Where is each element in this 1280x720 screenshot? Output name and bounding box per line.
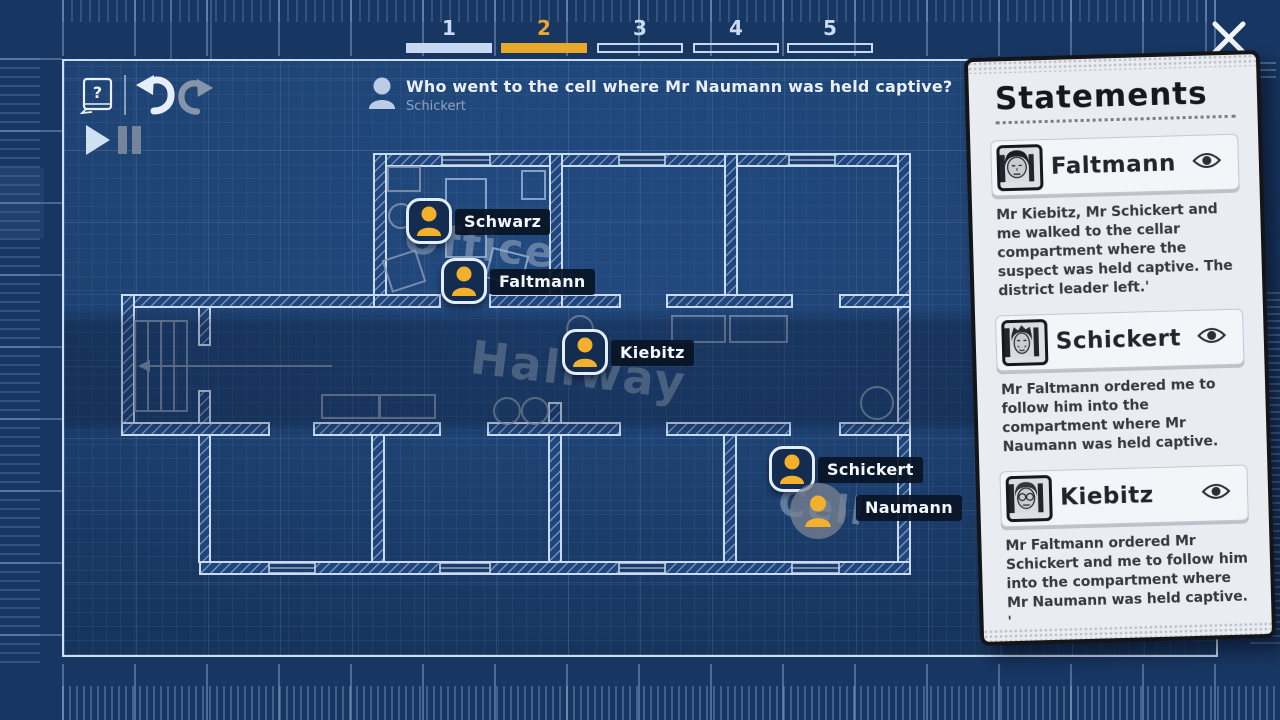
toolbar-divider	[124, 75, 126, 115]
statement-card-kiebitz[interactable]: Kiebitz	[999, 465, 1248, 528]
help-button[interactable]: ?	[80, 77, 116, 119]
question-answer: Schickert	[406, 99, 952, 114]
undo-icon	[134, 73, 176, 117]
play-button[interactable]	[86, 125, 112, 159]
person-icon	[415, 206, 443, 236]
statements-title: Statements	[995, 75, 1238, 118]
character-label: Kiebitz	[611, 340, 694, 366]
character-label: Faltmann	[490, 269, 595, 295]
tab-progress-bar	[406, 43, 492, 53]
tab-progress-bar	[693, 43, 779, 53]
tab-question-5[interactable]: 5	[787, 16, 873, 53]
play-icon	[86, 125, 112, 155]
portrait-kiebitz	[1006, 475, 1053, 522]
character-label: Schwarz	[455, 209, 550, 235]
tab-progress-bar	[787, 43, 873, 53]
eye-toggle-icon[interactable]	[1192, 150, 1223, 175]
statement-name: Kiebitz	[1060, 482, 1154, 511]
tab-question-1[interactable]: 1	[406, 16, 492, 53]
person-icon	[450, 266, 478, 296]
question-header: Who went to the cell where Mr Naumann wa…	[368, 77, 952, 114]
person-icon	[571, 337, 599, 367]
eye-toggle-icon[interactable]	[1196, 325, 1227, 350]
ruler-left	[0, 58, 62, 664]
character-label: Schickert	[818, 457, 923, 483]
tab-number: 3	[597, 16, 683, 40]
character-token-naumann[interactable]: Naumann	[790, 483, 846, 539]
character-label: Naumann	[856, 495, 962, 521]
question-title: Who went to the cell where Mr Naumann wa…	[406, 77, 952, 96]
statement-text: Mr Kiebitz, Mr Schickert and me walked t…	[996, 200, 1241, 302]
pause-button[interactable]	[118, 125, 144, 159]
statement-text: Mr Faltmann ordered Mr Schickert and me …	[1005, 531, 1250, 633]
tab-number: 4	[693, 16, 779, 40]
tab-number: 2	[501, 16, 587, 40]
person-icon	[803, 495, 833, 527]
character-token-schwarz[interactable]: Schwarz	[406, 198, 452, 244]
tab-progress-bar	[597, 43, 683, 53]
tab-number: 1	[406, 16, 492, 40]
portrait-faltmann	[996, 144, 1043, 191]
svg-text:?: ?	[93, 83, 102, 102]
frame-decoration	[0, 168, 44, 238]
paper-texture	[968, 54, 1256, 74]
game-screen: 1 2 3 4 5	[0, 0, 1280, 720]
statements-panel: Statements Faltmann	[964, 50, 1276, 646]
statement-card-schickert[interactable]: Schickert	[995, 309, 1244, 372]
statement-name: Schickert	[1055, 325, 1181, 354]
tab-progress-bar	[501, 43, 587, 53]
eye-toggle-icon[interactable]	[1201, 481, 1232, 506]
speaker-person-icon	[368, 77, 396, 109]
tab-question-4[interactable]: 4	[693, 16, 779, 53]
help-book-icon: ?	[80, 77, 116, 115]
statement-name: Faltmann	[1051, 150, 1177, 179]
tab-question-2[interactable]: 2	[501, 16, 587, 53]
undo-button[interactable]	[134, 73, 176, 121]
ruler-bottom	[62, 664, 1280, 720]
redo-button[interactable]	[176, 77, 216, 121]
pause-icon	[118, 125, 144, 155]
statement-card-faltmann[interactable]: Faltmann	[990, 134, 1239, 197]
statement-text: Mr Faltmann ordered me to follow him int…	[1001, 375, 1245, 458]
staircase	[135, 321, 332, 411]
character-token-kiebitz[interactable]: Kiebitz	[562, 329, 608, 375]
person-icon	[778, 454, 806, 484]
tab-number: 5	[787, 16, 873, 40]
tab-question-3[interactable]: 3	[597, 16, 683, 53]
redo-icon	[176, 77, 216, 117]
portrait-schickert	[1001, 319, 1048, 366]
character-token-faltmann[interactable]: Faltmann	[441, 258, 487, 304]
